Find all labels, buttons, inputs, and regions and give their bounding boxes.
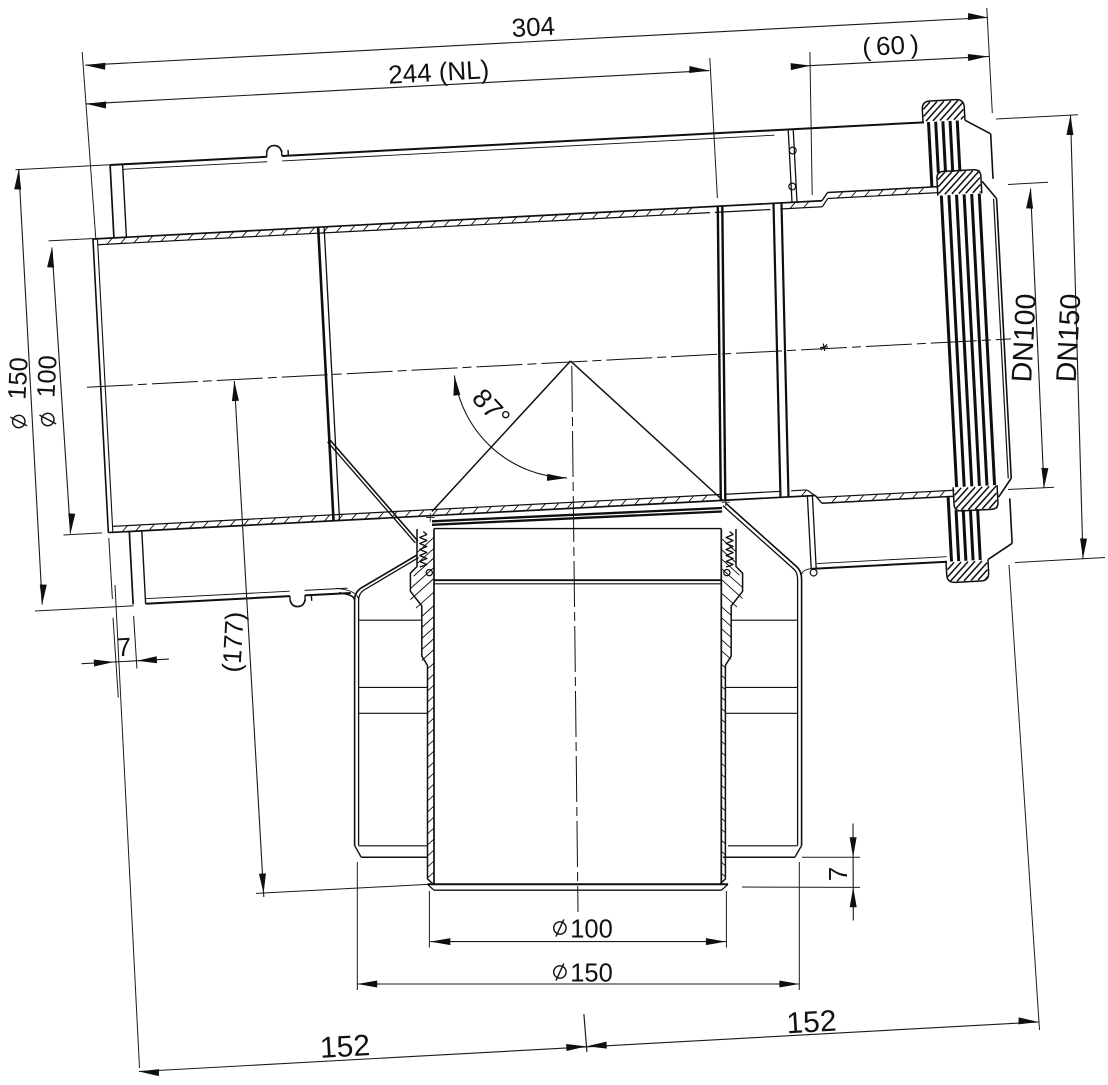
svg-text:DN100: DN100 bbox=[1006, 293, 1043, 383]
svg-text:100: 100 bbox=[32, 355, 62, 399]
svg-text:152: 152 bbox=[319, 1029, 371, 1065]
svg-text:304: 304 bbox=[511, 11, 556, 43]
svg-text:7: 7 bbox=[823, 867, 853, 881]
svg-text:150: 150 bbox=[570, 960, 613, 988]
svg-text:DN150: DN150 bbox=[1051, 293, 1088, 383]
svg-text:150: 150 bbox=[3, 357, 33, 401]
svg-text:( 60 ): ( 60 ) bbox=[861, 29, 919, 62]
svg-text:244 (NL): 244 (NL) bbox=[387, 54, 490, 90]
svg-text:100: 100 bbox=[570, 915, 613, 943]
svg-text:(177): (177) bbox=[216, 611, 250, 673]
svg-text:152: 152 bbox=[786, 1005, 838, 1041]
